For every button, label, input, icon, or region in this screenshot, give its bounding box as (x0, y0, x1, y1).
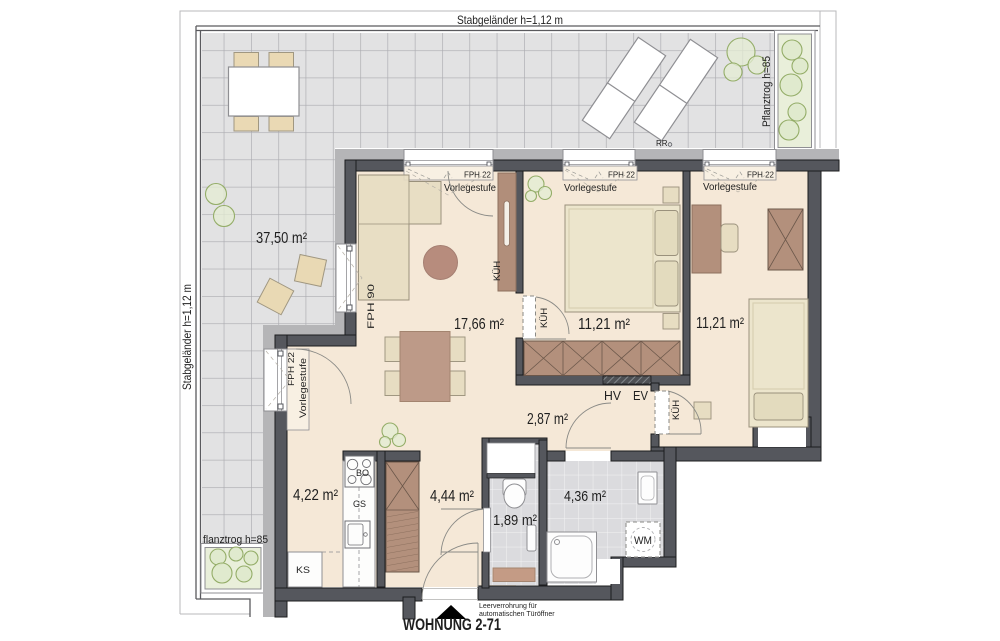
svg-text:WOHNUNG 2-71: WOHNUNG 2-71 (403, 616, 501, 634)
svg-text:FPH 22: FPH 22 (747, 170, 774, 180)
svg-text:2,87 m²: 2,87 m² (527, 411, 568, 428)
svg-text:Vorlegestufe: Vorlegestufe (298, 358, 309, 418)
svg-text:4,44 m²: 4,44 m² (430, 488, 474, 505)
svg-text:Stabgeländer h=1,12 m: Stabgeländer h=1,12 m (180, 284, 194, 390)
svg-text:EV: EV (633, 389, 649, 403)
svg-text:KÜH: KÜH (539, 308, 550, 328)
svg-text:flanztrog h=85: flanztrog h=85 (203, 534, 268, 546)
svg-text:FPH 22: FPH 22 (287, 351, 296, 386)
svg-text:17,66 m²: 17,66 m² (454, 316, 504, 333)
svg-text:GS: GS (353, 499, 366, 510)
svg-text:4,22 m²: 4,22 m² (293, 487, 338, 504)
svg-text:FPH 90: FPH 90 (366, 284, 377, 329)
svg-text:37,50 m²: 37,50 m² (256, 230, 307, 247)
svg-text:FPH 22: FPH 22 (464, 170, 491, 180)
svg-text:WM: WM (634, 535, 652, 547)
svg-text:KÜH: KÜH (671, 400, 682, 420)
svg-text:4,36 m²: 4,36 m² (564, 488, 606, 505)
svg-text:11,21 m²: 11,21 m² (696, 315, 744, 332)
svg-text:11,21 m²: 11,21 m² (578, 316, 630, 333)
svg-text:KÜH: KÜH (492, 261, 503, 281)
svg-text:HV: HV (604, 389, 622, 403)
svg-text:Leerverrohrung für: Leerverrohrung für (479, 603, 538, 610)
svg-text:Pflanztrog h=85: Pflanztrog h=85 (761, 56, 773, 127)
svg-text:RR: RR (656, 139, 668, 148)
svg-text:Vorlegestufe: Vorlegestufe (703, 182, 757, 193)
svg-text:KS: KS (296, 565, 310, 576)
svg-text:Stabgeländer h=1,12 m: Stabgeländer h=1,12 m (457, 13, 563, 27)
svg-text:BO: BO (356, 468, 369, 479)
svg-text:1,89 m²: 1,89 m² (493, 512, 537, 529)
svg-text:automatischen Türöffner: automatischen Türöffner (479, 611, 555, 618)
